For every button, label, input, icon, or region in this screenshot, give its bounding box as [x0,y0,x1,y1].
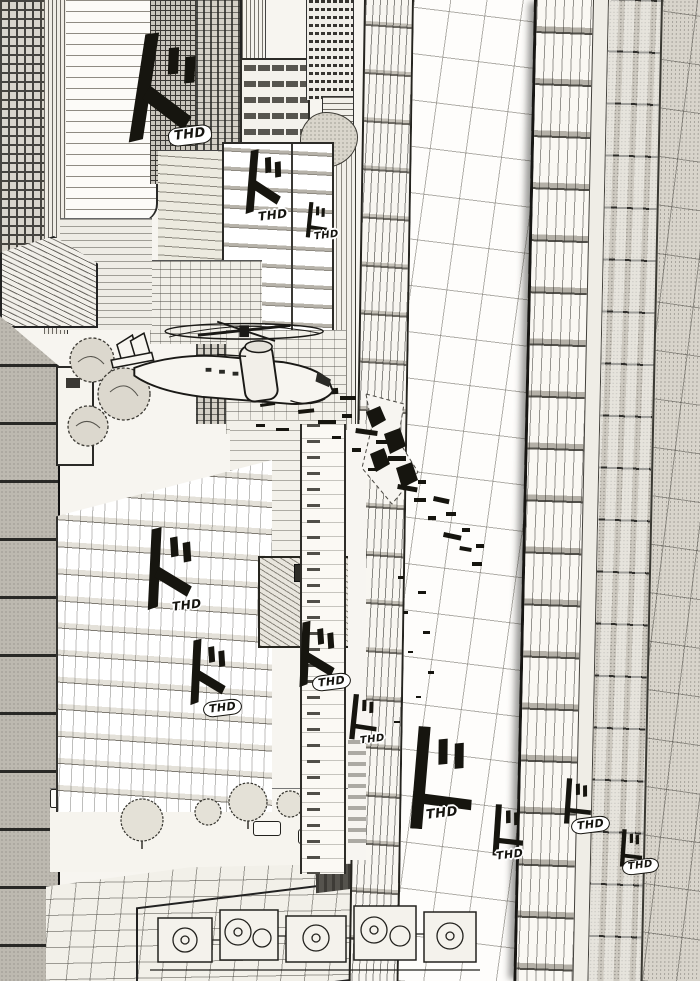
right-residential-tower [513,0,700,981]
apartment-midrise [56,460,272,812]
manga-page: THD THD THD THD THD THD THD THD THD THD … [0,0,700,981]
building-dense-windows-tower [0,0,46,270]
foreground-dark-tower [0,306,60,981]
hvac-units [150,886,480,981]
building-dash-facade-tower [306,0,354,100]
crosswalk [348,740,366,850]
osprey-aircraft [98,312,346,418]
building-midrise-block [158,150,230,260]
